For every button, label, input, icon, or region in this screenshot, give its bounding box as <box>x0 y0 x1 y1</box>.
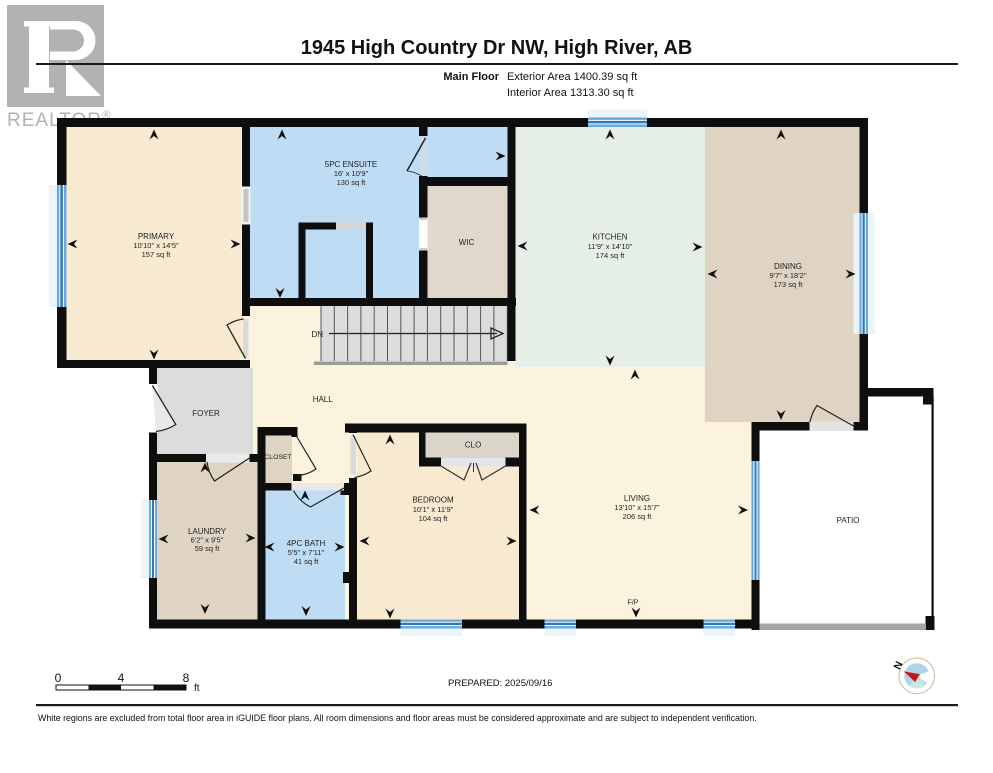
svg-text:HALL: HALL <box>313 395 334 404</box>
svg-text:CLOSET: CLOSET <box>264 454 291 461</box>
svg-text:0: 0 <box>55 671 62 685</box>
svg-text:BEDROOM: BEDROOM <box>412 496 454 505</box>
svg-text:104 sq ft: 104 sq ft <box>419 514 449 523</box>
svg-text:F/P: F/P <box>628 600 639 607</box>
svg-text:13'10" x 15'7": 13'10" x 15'7" <box>614 503 660 512</box>
svg-text:KITCHEN: KITCHEN <box>592 233 627 242</box>
svg-text:DN: DN <box>311 330 323 339</box>
svg-text:CLO: CLO <box>465 441 481 450</box>
svg-text:206 sq ft: 206 sq ft <box>623 512 653 521</box>
svg-text:173 sq ft: 173 sq ft <box>774 280 804 289</box>
svg-text:White regions are excluded fro: White regions are excluded from total fl… <box>38 713 757 723</box>
svg-text:PREPARED: 2025/09/16: PREPARED: 2025/09/16 <box>448 678 552 689</box>
svg-text:11'9" x 14'10": 11'9" x 14'10" <box>588 242 633 251</box>
svg-text:WIC: WIC <box>459 238 475 247</box>
svg-text:5PC ENSUITE: 5PC ENSUITE <box>325 160 377 169</box>
svg-text:ft: ft <box>194 683 200 694</box>
svg-text:59 sq ft: 59 sq ft <box>195 544 221 553</box>
svg-text:9'7" x 18'2": 9'7" x 18'2" <box>770 271 807 280</box>
svg-text:16' x 10'9": 16' x 10'9" <box>334 169 369 178</box>
svg-text:LIVING: LIVING <box>624 494 650 503</box>
svg-text:5'5" x 7'11": 5'5" x 7'11" <box>288 548 325 557</box>
svg-text:DINING: DINING <box>774 262 802 271</box>
svg-text:4PC BATH: 4PC BATH <box>287 539 326 548</box>
svg-text:4: 4 <box>118 671 125 685</box>
svg-text:PRIMARY: PRIMARY <box>138 232 175 241</box>
svg-text:8: 8 <box>183 671 190 685</box>
svg-text:10'10" x 14'5": 10'10" x 14'5" <box>133 241 179 250</box>
svg-text:PATIO: PATIO <box>837 516 860 525</box>
svg-text:130 sq ft: 130 sq ft <box>337 178 367 187</box>
svg-text:41 sq ft: 41 sq ft <box>294 557 320 566</box>
svg-text:157 sq ft: 157 sq ft <box>142 250 172 259</box>
svg-text:174 sq ft: 174 sq ft <box>596 251 626 260</box>
svg-text:10'1" x 11'9": 10'1" x 11'9" <box>413 505 454 514</box>
svg-text:FOYER: FOYER <box>192 409 220 418</box>
